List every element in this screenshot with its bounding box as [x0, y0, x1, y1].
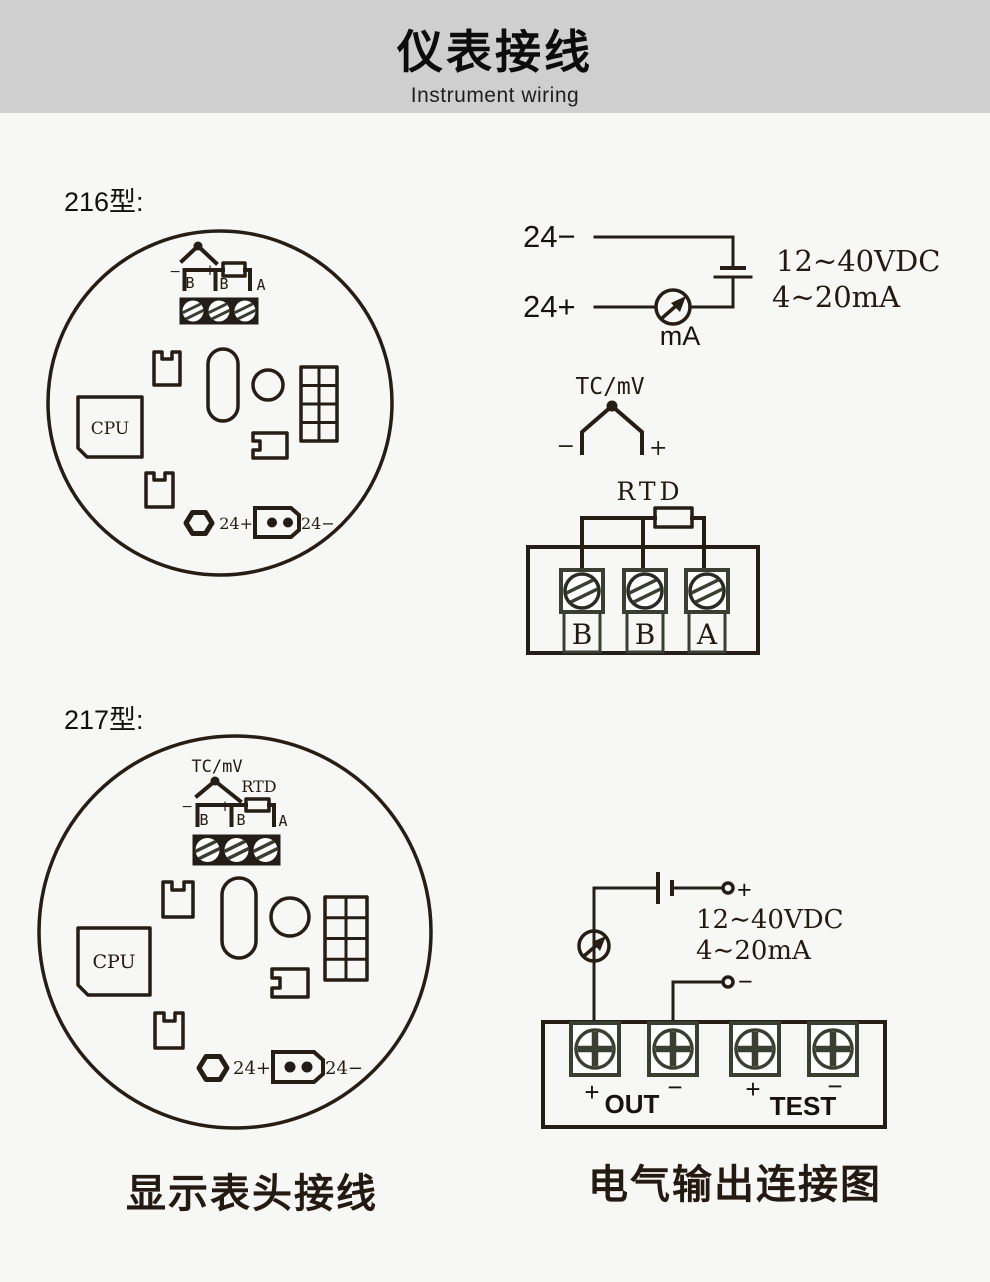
test-plus-label: + — [745, 1074, 760, 1104]
rtd-terminal-b1: B — [572, 618, 593, 651]
board216-neg: − — [169, 264, 181, 280]
instrument-wiring-page: 仪表接线 Instrument wiring 216型: 217型: − B +… — [0, 0, 990, 1282]
ammeter-symbol — [656, 290, 690, 324]
rtd-terminal-diagram: RTD B B — [528, 477, 758, 653]
output-screw-terminals — [571, 1023, 857, 1075]
component-grid — [301, 367, 337, 441]
rtd-resistor — [246, 799, 269, 811]
test-label: TEST — [770, 1091, 837, 1121]
board216-b1: B — [185, 274, 194, 292]
component-circle — [271, 898, 309, 936]
rtd-screw-terminals: B B A — [561, 570, 728, 652]
component-grid — [325, 897, 367, 980]
board217-pos: + — [219, 797, 232, 815]
page-header: 仪表接线 Instrument wiring — [0, 0, 990, 113]
tc-pos: + — [649, 436, 667, 461]
component-notched-rect-bottom — [146, 473, 173, 507]
test-minus-label: − — [827, 1071, 842, 1101]
power-connector — [255, 508, 299, 537]
sensor-terminal-wiring: − B + B A — [181, 797, 287, 830]
component-notched-rect-right — [253, 433, 287, 458]
board-216-diagram: − B + B A CPU — [40, 222, 420, 592]
power-connector — [273, 1052, 323, 1082]
board216-24plus: 24+ — [219, 514, 253, 533]
terminal-strip-labels: + OUT − + TEST − — [584, 1071, 842, 1121]
spec-voltage-217: 12∼40VDC — [696, 905, 843, 935]
mounting-nut — [186, 513, 212, 534]
page-title: 仪表接线 — [0, 0, 990, 82]
output-loop-wiring: + 12∼40VDC 4∼20mA − — [579, 874, 843, 1023]
spec-voltage-216: 12∼40VDC — [776, 244, 940, 278]
ammeter-label: mA — [660, 321, 701, 351]
out-minus-label: − — [667, 1072, 682, 1102]
board-217-diagram: TC/mV RTD − B + B A — [30, 725, 450, 1137]
board217-rtd-title: RTD — [241, 777, 276, 796]
rtd-resistor-symbol — [655, 508, 692, 527]
line-24plus: 24+ — [523, 289, 576, 324]
board217-tc-title: TC/mV — [191, 757, 242, 777]
rtd-terminal-b2: B — [635, 618, 656, 651]
tc-sensor-symbol — [182, 242, 216, 264]
caption-electrical-output: 电气输出连接图 — [588, 1152, 882, 1210]
circuit-216-diagram: 24− 24+ mA 12∼40VDC 4∼20mA TC/mV — [500, 215, 980, 665]
out-label: OUT — [605, 1089, 660, 1119]
cpu-label: CPU — [92, 951, 135, 973]
model-216-label: 216型: — [64, 180, 144, 219]
page-subtitle: Instrument wiring — [0, 84, 990, 108]
board217-a: A — [278, 812, 287, 830]
board216-24minus: 24− — [301, 514, 335, 533]
line-24minus: 24− — [523, 219, 576, 254]
circuit-217-diagram: + 12∼40VDC 4∼20mA − — [535, 858, 965, 1148]
loop-power-circuit: 24− 24+ mA 12∼40VDC 4∼20mA — [523, 219, 940, 351]
minus-terminal-dot — [723, 977, 733, 987]
cpu-chip: CPU — [78, 928, 150, 995]
caption-display-head-wiring: 显示表头接线 — [126, 1161, 378, 1219]
tc-mv-legend: TC/mV − + — [557, 374, 668, 461]
spec-current-217: 4∼20mA — [696, 936, 812, 966]
battery-symbol — [658, 874, 672, 902]
source-minus: − — [738, 968, 753, 996]
sensor-terminal-block — [193, 835, 280, 865]
sensor-terminal-block — [180, 298, 258, 324]
rtd-terminal-a: A — [696, 618, 718, 651]
board217-b2: B — [236, 811, 245, 829]
board217-24plus: 24+ — [233, 1058, 271, 1079]
board217-b1: B — [199, 811, 208, 829]
component-notched-rect-top — [163, 882, 193, 917]
plus-terminal-dot — [723, 883, 733, 893]
board216-b2: B — [219, 275, 228, 293]
tc-mv-title: TC/mV — [575, 374, 644, 400]
out-plus-label: + — [584, 1077, 599, 1107]
component-pill — [208, 349, 238, 421]
board216-pos: + — [204, 261, 217, 279]
spec-current-216: 4∼20mA — [772, 280, 901, 314]
component-notched-rect-top — [154, 352, 180, 385]
tc-neg: − — [557, 434, 575, 459]
source-plus: + — [737, 876, 752, 904]
component-notched-rect-bottom — [155, 1013, 183, 1048]
board216-a: A — [256, 276, 265, 294]
board217-24minus: 24− — [325, 1058, 363, 1079]
cpu-label: CPU — [91, 419, 129, 439]
component-pill — [222, 878, 256, 958]
cpu-chip: CPU — [78, 397, 142, 457]
sensor-terminal-wiring: − B + B A — [169, 261, 265, 294]
board217-neg: − — [181, 799, 193, 815]
component-circle — [253, 370, 283, 400]
component-notched-rect-right — [272, 969, 308, 997]
rtd-title: RTD — [616, 477, 683, 506]
mounting-nut — [199, 1057, 227, 1080]
